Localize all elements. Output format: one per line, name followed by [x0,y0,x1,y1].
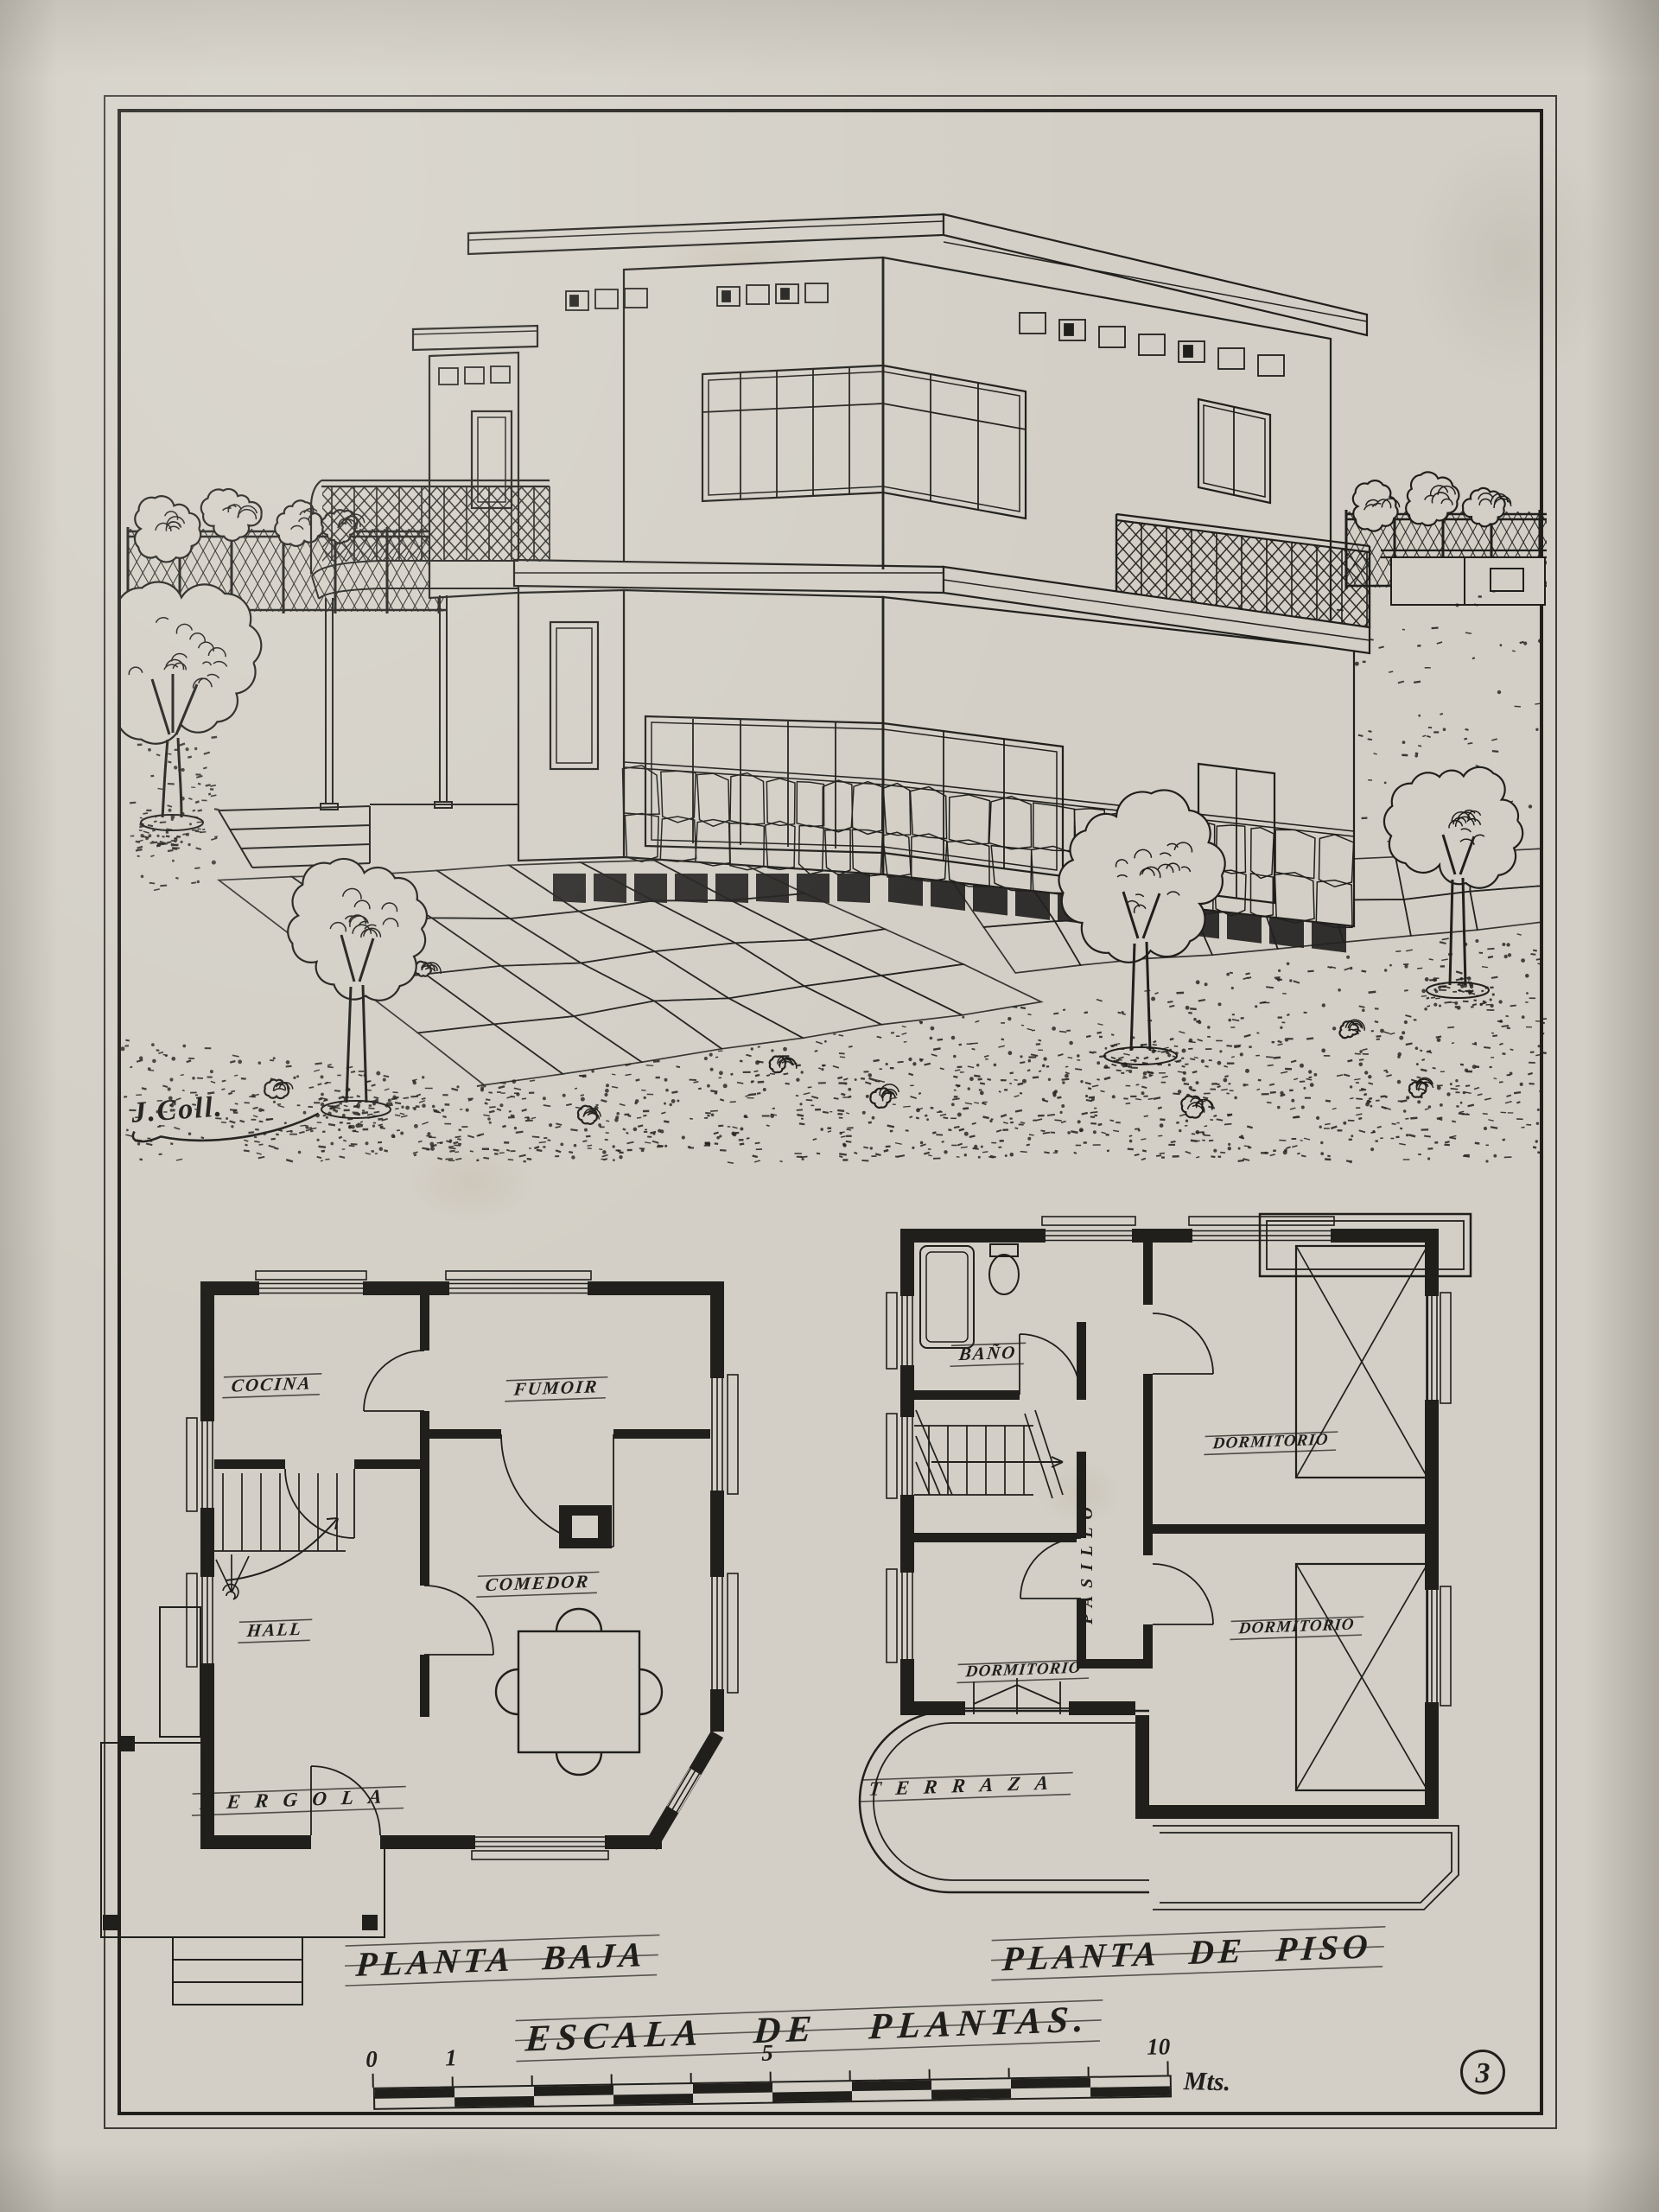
background-house [1381,550,1547,605]
upper-walls [900,1229,1439,1819]
upper-windows [887,1217,1451,1714]
room-label-bano: BAÑO [949,1340,1027,1368]
scale-bar-tick [1088,2067,1090,2076]
scale-unit-label: Mts. [1184,2067,1231,2097]
scale-bar-tick [531,2075,533,2085]
room-label-dormitorio-3: DORMITORIO [956,1656,1091,1683]
upper-floor-plan-drawing [778,1192,1495,1935]
porch-columns [321,595,518,810]
scale-bar-tick [1166,2061,1168,2075]
upper-staircase [914,1410,1063,1498]
scale-bar-tick [770,2072,772,2082]
bathtub [920,1246,974,1348]
staircase [214,1473,346,1599]
ground-floor-plan-drawing [86,1205,778,2026]
ground-windows [187,1271,738,1859]
scale-bar-tick [929,2069,931,2079]
pergola-pillars [103,1736,378,1930]
scale-bar-tick [690,2073,692,2082]
paper-stain [242,2126,691,2195]
house [188,214,1547,926]
artist-signature: J.Coll. [130,1090,225,1129]
room-label-comedor: COMEDOR [475,1569,600,1599]
scale-bar-tick [372,2074,374,2088]
bed [1296,1564,1427,1790]
scale-bar-tick [452,2076,454,2086]
scale-bar-tick [1008,2068,1010,2077]
room-label-dormitorio-2: DORMITORIO [1229,1613,1364,1640]
room-label-pasillo: PASILLO [1077,1407,1114,1624]
scale-tick-5: 5 [761,2040,773,2067]
upper-doors [1020,1313,1213,1624]
room-label-fumoir: FUMOIR [504,1374,608,1402]
plate-number-badge: 3 [1460,2050,1505,2094]
scale-tick-1: 1 [445,2044,457,2071]
toilet [989,1244,1019,1294]
scale-tick-0: 0 [365,2046,378,2073]
room-label-dormitorio-1: DORMITORIO [1203,1428,1338,1455]
scale-bar-tick [611,2075,613,2084]
terrace-parapet [860,1711,1149,1892]
dining-table [496,1609,662,1775]
scale-bar-tick [849,2070,851,2080]
chimney-core [572,1516,598,1538]
bay-roof-outline [1153,1826,1459,1910]
perspective-drawing [121,121,1547,1166]
paper-sheet: J.Coll. [0,0,1659,2212]
room-label-hall: HALL [237,1617,312,1644]
room-label-cocina: COCINA [221,1370,321,1399]
scale-tick-10: 10 [1147,2033,1170,2060]
